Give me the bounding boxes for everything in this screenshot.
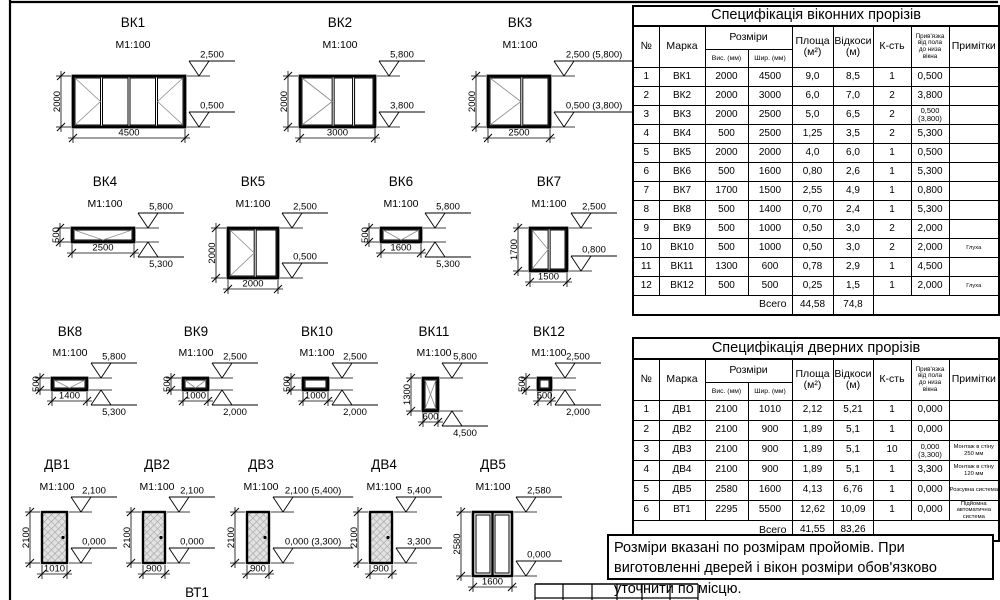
total-empty [873,296,999,316]
spec-row: 7ВК7170015002,554,910,800 [633,182,999,201]
spec-cell: 500 [705,201,748,220]
spec-cell: 3 [633,441,659,461]
spec-cell [949,220,999,239]
svg-text:0,500 (3,800): 0,500 (3,800) [566,101,623,112]
svg-text:0,800: 0,800 [582,245,606,256]
col-sizes: Розміри [705,359,792,383]
spec-cell: ДВ5 [659,481,705,501]
spec-cell: 6 [633,163,659,182]
spec-cell: 6 [633,501,659,521]
spec-cell: 500 [705,125,748,144]
spec-cell: 1,89 [792,421,833,441]
svg-text:900: 900 [373,564,389,575]
figure-scale: M1:100 [531,198,566,210]
spec-cell: 3 [633,106,659,125]
svg-text:5,800: 5,800 [102,352,126,363]
svg-text:4,500: 4,500 [453,428,477,439]
spec-cell: 600 [748,258,792,277]
spec-cell: ДВ2 [659,421,705,441]
figure-ДВ1: ДВ1M1:100101021002,1000,000 [21,457,117,579]
svg-text:5,800: 5,800 [149,202,173,213]
svg-text:2,500: 2,500 [293,202,317,213]
spec-cell: ВК7 [659,182,705,201]
svg-text:5,800: 5,800 [436,202,460,213]
svg-text:2,000: 2,000 [343,407,367,418]
spec-cell: 2,12 [792,401,833,421]
spec-cell [949,182,999,201]
spec-cell: Монтаж в стіну 120 мм [949,461,999,481]
drawing-sheet: ВК1M1:100450020002,5000,500ВК2M1:1003000… [0,0,1000,600]
spec-cell: 10,09 [833,501,873,521]
svg-text:2,500 (5,800): 2,500 (5,800) [566,50,623,61]
svg-text:500: 500 [31,376,42,392]
svg-text:5,300: 5,300 [436,259,460,270]
spec-cell: 2,000 [911,220,949,239]
figure-scale: M1:100 [366,481,401,493]
spec-cell: 10 [633,239,659,258]
figure-label: ДВ3 [248,457,274,472]
svg-text:0,000 (3,300): 0,000 (3,300) [285,537,342,548]
figure-ДВ4: ДВ4M1:10090021005,4003,300 [349,457,442,579]
spec-cell: 1 [873,421,911,441]
figure-scale: M1:100 [235,198,270,210]
svg-text:2,580: 2,580 [527,486,551,497]
figure-label: ВК4 [93,174,118,189]
spec-cell: ДВ4 [659,461,705,481]
figure-ВК3: ВК3M1:100250020002,500 (5,800)0,500 (3,8… [467,15,634,143]
spec-cell [949,163,999,182]
spec-cell: 1 [873,501,911,521]
spec-cell: ВК9 [659,220,705,239]
spec-cell: 2000 [705,144,748,163]
figure-label: ДВ1 [44,457,70,472]
svg-text:500: 500 [537,391,553,402]
col-slopes: Відкоси(м) [833,359,873,401]
figure-scale: M1:100 [416,347,451,359]
svg-text:2,000: 2,000 [566,407,590,418]
spec-cell: 2000 [705,106,748,125]
spec-cell: 2000 [705,68,748,87]
spec-cell: 4 [633,461,659,481]
figure-scale: M1:100 [383,198,418,210]
spec-cell: 5500 [748,501,792,521]
spec-row: 1ВК1200045009,08,510,500 [633,68,999,87]
svg-text:0,000: 0,000 [82,537,106,548]
spec-cell: 6,0 [833,144,873,163]
spec-cell: 0,70 [792,201,833,220]
figure-scale: M1:100 [502,39,537,51]
spec-cell: 0,000 [911,401,949,421]
spec-row: 4ВК450025001,253,525,300 [633,125,999,144]
table-title: Специфікація віконних прорізів [633,6,999,26]
spec-cell: 1 [873,68,911,87]
svg-text:500: 500 [162,376,173,392]
spec-row: 12ВК125005000,251,512,000Глуха [633,277,999,296]
spec-cell: 4500 [748,68,792,87]
figure-ВК8: ВК8M1:10014005005,8005,300 [31,324,137,418]
spec-cell: ВТ1 [659,501,705,521]
svg-text:1010: 1010 [44,564,65,575]
spec-cell: 2 [633,87,659,106]
svg-text:1500: 1500 [538,272,559,283]
col-mark: Марка [659,359,705,401]
figure-label: ВК8 [58,324,82,339]
spec-cell: 5,300 [911,125,949,144]
spec-cell: 1 [873,163,911,182]
spec-cell: 2500 [748,125,792,144]
svg-text:0,000: 0,000 [527,550,551,561]
spec-row: 4ДВ421009001,895,113,300Монтаж в стіну 1… [633,461,999,481]
figure-ВТ1: ВТ1 [185,585,209,600]
spec-cell [949,125,999,144]
spec-cell: ВК5 [659,144,705,163]
svg-text:2100: 2100 [349,527,360,548]
spec-cell: 1300 [705,258,748,277]
col-num: № [633,26,659,68]
spec-cell: 2 [873,220,911,239]
figure-label: ВК10 [301,324,333,339]
svg-text:600: 600 [423,412,439,423]
svg-text:1400: 1400 [59,391,80,402]
figure-label: ВК7 [537,174,561,189]
spec-cell: ВК2 [659,87,705,106]
svg-text:2,100: 2,100 [180,486,204,497]
figure-label: ВК12 [533,324,565,339]
table-title: Специфікація дверних прорізів [633,338,999,359]
spec-cell: 2 [873,125,911,144]
figure-scale: M1:100 [475,481,510,493]
svg-text:5,300: 5,300 [102,407,126,418]
spec-cell: 1 [873,481,911,501]
spec-cell: 5,0 [792,106,833,125]
spec-cell: 2100 [705,461,748,481]
figure-scale: M1:100 [243,481,278,493]
spec-cell: 7,0 [833,87,873,106]
spec-cell: 3,5 [833,125,873,144]
spec-row: 6ВТ12295550012,6210,0910,000Підйомна авт… [633,501,999,521]
spec-row: 8ВК850014000,702,415,300 [633,201,999,220]
spec-cell: 500 [705,277,748,296]
svg-text:1000: 1000 [305,391,326,402]
col-mark: Марка [659,26,705,68]
spec-cell: 500 [705,163,748,182]
col-binding: Прив'язкавід поладо низавікна [911,359,949,401]
col-notes: Примітки [949,26,999,68]
spec-cell: 2 [873,87,911,106]
col-width: Шир. (мм) [748,383,792,401]
svg-text:500: 500 [282,376,293,392]
spec-cell: Глуха [949,277,999,296]
svg-text:0,500: 0,500 [293,252,317,263]
spec-cell: 3,800 [911,87,949,106]
spec-cell: 0,25 [792,277,833,296]
svg-text:2500: 2500 [92,243,113,254]
total-label: Всего [633,296,792,316]
spec-cell: 2,6 [833,163,873,182]
door-spec-table: Специфікація дверних прорізів№МаркаРозмі… [632,337,1000,542]
header-row: №МаркаРозміриПлоща(м²)Відкоси(м)К-стьПри… [633,26,999,50]
spec-cell: 1 [633,401,659,421]
total-row: Всего44,5874,8 [633,296,999,316]
spec-cell: 1600 [748,481,792,501]
spec-cell: 5,1 [833,461,873,481]
spec-cell: 6,5 [833,106,873,125]
spec-cell: ВК12 [659,277,705,296]
total-area: 44,58 [792,296,833,316]
spec-cell: 1 [873,258,911,277]
figure-ВК9: ВК9M1:10010005002,5002,000 [162,324,258,418]
svg-text:2000: 2000 [242,279,263,290]
spec-cell: 12,62 [792,501,833,521]
spec-cell: 1,25 [792,125,833,144]
spec-cell [949,87,999,106]
figure-scale: M1:100 [115,39,150,51]
spec-cell: 1 [633,68,659,87]
spec-cell: 5,1 [833,441,873,461]
spec-cell: 3,0 [833,220,873,239]
spec-cell: 5,1 [833,421,873,441]
spec-cell: 5,300 [911,201,949,220]
svg-text:2580: 2580 [452,533,463,554]
svg-text:1600: 1600 [482,577,503,588]
door-handle [159,536,162,539]
figure-ДВ3: ДВ3M1:10090021002,100 (5,400)0,000 (3,30… [226,457,353,579]
spec-cell: 3,0 [833,239,873,258]
svg-text:2,500: 2,500 [200,50,224,61]
door-handle [61,536,64,539]
col-height: Вис. (мм) [705,50,748,68]
figure-label: ВК3 [508,15,532,30]
spec-cell: 900 [748,421,792,441]
spec-cell: 10 [873,441,911,461]
svg-text:2,500: 2,500 [223,352,247,363]
figure-scale: M1:100 [52,347,87,359]
spec-cell [949,201,999,220]
spec-cell: 500 [705,239,748,258]
spec-cell: 0,500 [911,144,949,163]
spec-cell: 1700 [705,182,748,201]
svg-text:0,500: 0,500 [200,101,224,112]
spec-cell: Глуха [949,239,999,258]
spec-cell: 500 [705,220,748,239]
spec-cell: 2,4 [833,201,873,220]
spec-row: 5ДВ5258016004,136,7610,000Розсувна систе… [633,481,999,501]
spec-row: 1ДВ1210010102,125,2110,000 [633,401,999,421]
spec-row: 5ВК5200020004,06,010,500 [633,144,999,163]
spec-row: 3ДВ321009001,895,1100,000(3,300)Монтаж в… [633,441,999,461]
spec-cell: 1 [873,277,911,296]
figure-label: ВК9 [184,324,208,339]
spec-cell: ВК3 [659,106,705,125]
spec-cell: 1010 [748,401,792,421]
svg-text:5,800: 5,800 [453,352,477,363]
spec-cell: 2100 [705,441,748,461]
spec-cell: 1 [873,201,911,220]
spec-cell: 0,000 [911,501,949,521]
spec-cell: 1 [873,182,911,201]
spec-cell [949,401,999,421]
spec-cell: 6,76 [833,481,873,501]
svg-text:1600: 1600 [390,243,411,254]
svg-text:1700: 1700 [509,239,520,260]
spec-cell [949,258,999,277]
svg-text:500: 500 [51,227,62,243]
spec-cell: 2500 [748,106,792,125]
spec-cell: 4,0 [792,144,833,163]
spec-cell: 5 [633,481,659,501]
spec-row: 10ВК1050010000,503,022,000Глуха [633,239,999,258]
col-notes: Примітки [949,359,999,401]
spec-cell: 9,0 [792,68,833,87]
svg-text:2,500: 2,500 [343,352,367,363]
col-sizes: Розміри [705,26,792,50]
col-area: Площа(м²) [792,26,833,68]
spec-cell: 12 [633,277,659,296]
spec-cell: 1 [873,401,911,421]
figure-label: ДВ5 [480,457,506,472]
door-handle [263,536,266,539]
spec-cell: 0,50 [792,220,833,239]
svg-text:900: 900 [146,564,162,575]
spec-cell: Монтаж в стіну 250 мм [949,441,999,461]
spec-row: 11ВК1113006000,782,914,500 [633,258,999,277]
spec-cell: 0,500(3,800) [911,106,949,125]
spec-cell [949,68,999,87]
spec-cell: 11 [633,258,659,277]
spec-cell: 7 [633,182,659,201]
spec-cell: 2,000 [911,239,949,258]
figure-label: ДВ4 [371,457,397,472]
spec-cell: 2000 [748,144,792,163]
svg-text:2,100 (5,400): 2,100 (5,400) [285,486,342,497]
spec-cell: 3000 [748,87,792,106]
figure-ВК11: ВК11M1:10060013005,8004,500 [402,324,488,439]
spec-cell: 4,500 [911,258,949,277]
figure-scale: M1:100 [87,198,122,210]
figure-scale: M1:100 [178,347,213,359]
svg-text:1300: 1300 [402,384,413,405]
svg-text:2100: 2100 [226,527,237,548]
figure-label: ВК1 [121,15,145,30]
spec-cell: 2 [873,239,911,258]
svg-text:3,800: 3,800 [390,101,414,112]
spec-cell: 4 [633,125,659,144]
spec-cell: 3,300 [911,461,949,481]
spec-cell: 1500 [748,182,792,201]
svg-text:2,500: 2,500 [566,352,590,363]
spec-cell [949,106,999,125]
col-qty: К-сть [873,26,911,68]
spec-cell: 2000 [705,87,748,106]
spec-cell: 1600 [748,163,792,182]
figure-ВК10: ВК10M1:10010005002,5002,000 [282,324,378,418]
note-box: Розміри вказані по розмірам пройомів. Пр… [607,534,994,580]
spec-cell: 2 [633,421,659,441]
svg-text:3000: 3000 [327,128,348,139]
figure-ДВ2: ДВ2M1:10090021002,1000,000 [122,457,215,579]
spec-cell: 2,000 [911,277,949,296]
spec-cell: 0,800 [911,182,949,201]
svg-text:2,100: 2,100 [82,486,106,497]
figure-label: ДВ2 [144,457,170,472]
figure-label: ВК5 [241,174,265,189]
svg-text:0,000: 0,000 [180,537,204,548]
svg-text:500: 500 [517,376,528,392]
figure-ВК2: ВК2M1:100300020005,8003,800 [279,15,425,143]
figure-scale: M1:100 [322,39,357,51]
figure-label: ВК2 [328,15,352,30]
spec-cell: 0,80 [792,163,833,182]
spec-cell: 2580 [705,481,748,501]
svg-text:3,300: 3,300 [407,537,431,548]
spec-cell: 6,0 [792,87,833,106]
svg-text:2000: 2000 [467,91,478,112]
spec-row: 6ВК650016000,802,615,300 [633,163,999,182]
spec-cell: 0,50 [792,239,833,258]
svg-text:5,300: 5,300 [149,259,173,270]
col-area: Площа(м²) [792,359,833,401]
svg-text:4500: 4500 [118,128,139,139]
spec-cell: 1,89 [792,461,833,481]
figure-ВК1: ВК1M1:100450020002,5000,500 [52,15,235,143]
spec-cell: 0,78 [792,258,833,277]
svg-text:5,800: 5,800 [390,50,414,61]
col-height: Вис. (мм) [705,383,748,401]
spec-cell: ДВ1 [659,401,705,421]
figure-scale: M1:100 [139,481,174,493]
col-width: Шир. (мм) [748,50,792,68]
spec-cell: 900 [748,461,792,481]
spec-cell: 1,89 [792,441,833,461]
spec-cell: 8 [633,201,659,220]
spec-cell: 4,13 [792,481,833,501]
spec-cell: 0,000(3,300) [911,441,949,461]
spec-cell: 900 [748,441,792,461]
figure-scale: M1:100 [299,347,334,359]
spec-cell: 2295 [705,501,748,521]
svg-text:1000: 1000 [185,391,206,402]
door-handle [386,536,389,539]
figure-ВК7: ВК7M1:100150017002,5000,800 [509,174,617,287]
col-qty: К-сть [873,359,911,401]
svg-text:2,000: 2,000 [223,407,247,418]
figure-label: ВК6 [389,174,413,189]
figure-ДВ5: ДВ5M1:100160025802,5800,000 [452,457,562,592]
spec-cell [949,144,999,163]
spec-cell: 1400 [748,201,792,220]
figure-scale: M1:100 [39,481,74,493]
header-row: №МаркаРозміриПлоща(м²)Відкоси(м)К-стьПри… [633,359,999,383]
spec-cell: 500 [748,277,792,296]
spec-cell: 0,000 [911,481,949,501]
spec-cell: ВК1 [659,68,705,87]
svg-text:2000: 2000 [52,91,63,112]
spec-cell: 2100 [705,421,748,441]
spec-cell: ВК10 [659,239,705,258]
col-num: № [633,359,659,401]
spec-row: 9ВК950010000,503,022,000 [633,220,999,239]
svg-text:2000: 2000 [279,91,290,112]
svg-text:900: 900 [250,564,266,575]
figure-label: ВТ1 [185,585,209,600]
spec-cell: 2 [873,106,911,125]
spec-row: 2ДВ221009001,895,110,000 [633,421,999,441]
spec-cell: 2100 [705,401,748,421]
svg-text:5,400: 5,400 [407,486,431,497]
spec-cell: 4,9 [833,182,873,201]
spec-cell: ВК8 [659,201,705,220]
spec-cell: 8,5 [833,68,873,87]
